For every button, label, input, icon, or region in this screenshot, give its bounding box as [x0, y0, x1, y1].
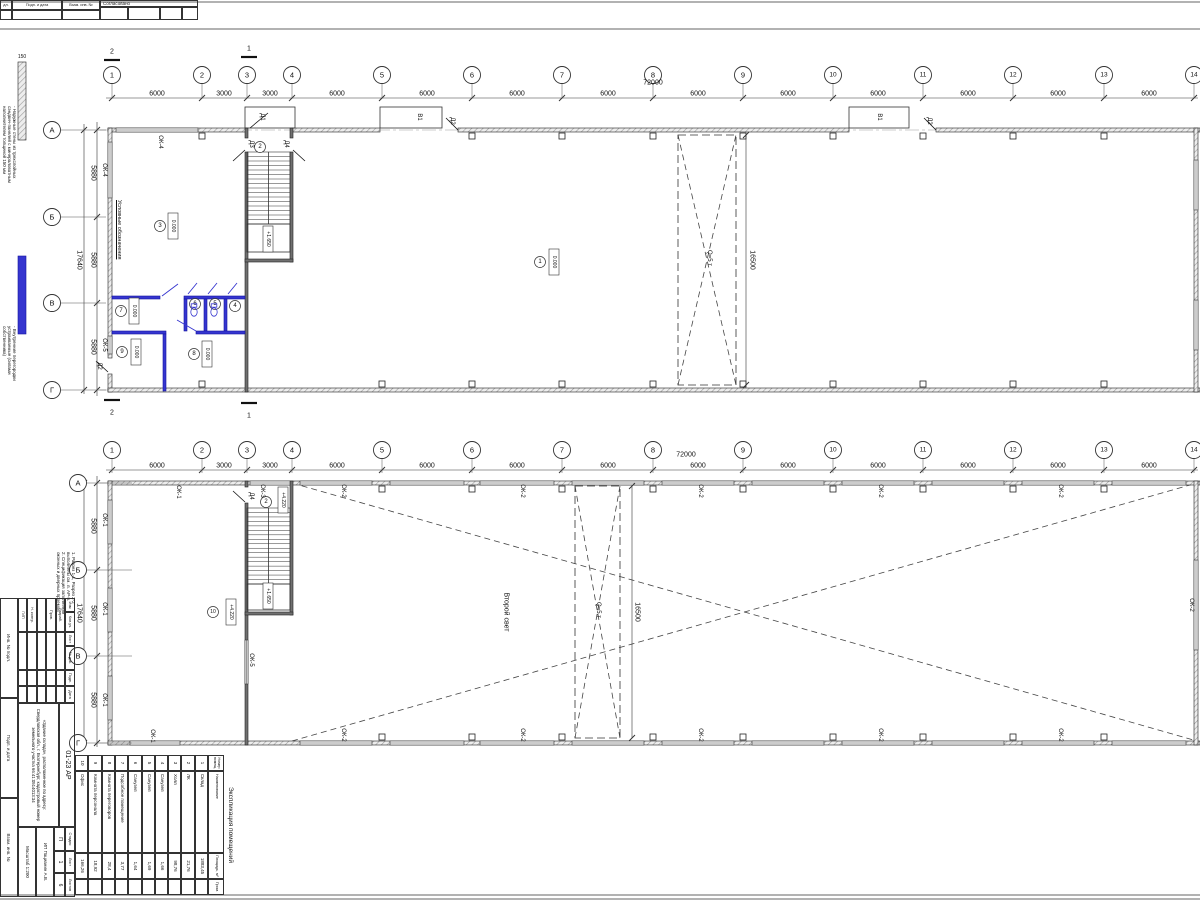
- annotation-text: 3000: [216, 91, 232, 98]
- exterior-wall: [18, 62, 26, 140]
- stamp-cell-empty: [62, 10, 100, 20]
- walls: [18, 62, 1200, 745]
- annotation-text: 6000: [690, 463, 706, 470]
- column: [1101, 133, 1107, 139]
- table-row: 10 Офис 166,26: [75, 755, 88, 895]
- column: [469, 381, 475, 387]
- annotation-text: Q=5 т: [595, 602, 601, 618]
- tb-object-description: «Здание склада», расположенное по адресу…: [18, 703, 59, 827]
- axis-bubble-label: 11: [920, 72, 927, 79]
- annotation-text: ОК-1: [101, 693, 107, 707]
- stamp-cell-empty: [0, 10, 12, 20]
- cell-name: Склад: [195, 771, 208, 853]
- column: [920, 734, 926, 740]
- annotation-text: ОК-1: [101, 602, 107, 616]
- cell-area: 3,77: [115, 853, 128, 879]
- tb-koluch: Кол.уч.: [65, 612, 75, 632]
- table-row: 7 Подсобное помещение 3,77: [115, 755, 128, 895]
- annotation-text: 5880: [90, 165, 97, 181]
- partition-wall: [204, 299, 207, 331]
- cell-number: 4: [155, 755, 168, 771]
- annotation-text: ОК-2: [877, 484, 883, 498]
- legend-line: сэндвич-панелей с минераловатным: [7, 106, 12, 324]
- table-row: 2 ЛК 21,76: [181, 755, 194, 895]
- stamp-grid-cell: [100, 7, 128, 20]
- annotation-text: 3000: [262, 463, 278, 470]
- columns: [199, 133, 1107, 740]
- axis-bubble-label: 4: [290, 446, 294, 455]
- annotation-text: Д2: [449, 117, 455, 125]
- annotation-text: 6000: [419, 91, 435, 98]
- cell-area: 28,4: [102, 853, 115, 879]
- crane-zone-crosses: [292, 135, 1197, 741]
- tb-blank: [56, 632, 65, 670]
- col-header-name: Наименование: [208, 771, 224, 853]
- cell-number: 10: [75, 755, 88, 771]
- cell-note: [181, 879, 194, 895]
- cell-note: [88, 879, 101, 895]
- column: [1101, 381, 1107, 387]
- tb-blank: [46, 670, 55, 686]
- annotation-text: 6000: [600, 463, 616, 470]
- cell-number: 6: [128, 755, 141, 771]
- interior-wall: [290, 128, 293, 138]
- tb-blank: [37, 670, 46, 686]
- level-value: 0.000: [131, 305, 137, 318]
- explication-rows: 1 Склад 1883,45 2 ЛК 21,76 3 Холл 98,76 …: [75, 755, 208, 895]
- annotation-text: 150: [18, 54, 27, 60]
- annotation-text: ОК-2: [519, 484, 525, 498]
- cell-area: 1,66: [155, 853, 168, 879]
- axis-bubbles: 12345678910111213141234567891011121314АБ…: [44, 67, 1200, 752]
- tb-sheets-value: 6: [54, 873, 65, 897]
- axis-bubble-label: Г: [50, 386, 54, 395]
- tb-nkontr: Н. контр.: [27, 598, 36, 632]
- column: [830, 486, 836, 492]
- column: [920, 133, 926, 139]
- annotation-text: 6000: [960, 463, 976, 470]
- annotation-text: 5880: [90, 692, 97, 708]
- column: [1010, 734, 1016, 740]
- cell-number: 1: [195, 755, 208, 771]
- interior-wall: [290, 152, 293, 262]
- annotation-text: ОК-1: [101, 513, 107, 527]
- axis-bubble-label: 5: [380, 446, 384, 455]
- annotation-text: Второй свет: [503, 592, 511, 632]
- cell-name: Холл: [168, 771, 181, 853]
- annotation-text: 17640: [76, 250, 83, 270]
- door-leaf: [233, 491, 245, 502]
- stairs: [247, 152, 290, 584]
- axis-bubble-label: 14: [1190, 72, 1198, 79]
- column: [740, 734, 746, 740]
- annotation-text: 2: [110, 49, 114, 56]
- tb-podp: Подп.: [65, 670, 75, 686]
- column: [559, 133, 565, 139]
- table-row: 8 Комната переговоров 28,4: [102, 755, 115, 895]
- cell-number: 2: [181, 755, 194, 771]
- annotation-text: Д4: [283, 140, 289, 148]
- table-row: 4 Санузел 1,66: [155, 755, 168, 895]
- cell-note: [102, 879, 115, 895]
- axis-bubble-label: 2: [200, 446, 204, 455]
- partition-door-leaf: [162, 284, 178, 296]
- annotation-text: Q=5 т: [706, 250, 712, 266]
- partition-door-leaf: [228, 283, 237, 294]
- exterior-wall: [936, 128, 1200, 132]
- annotation-text: 16500: [749, 250, 756, 270]
- annotation-text: 6000: [600, 91, 616, 98]
- cell-number: 3: [168, 755, 181, 771]
- explication-title: Экспликация помещений: [224, 755, 237, 895]
- column: [650, 734, 656, 740]
- annotation-text: 6000: [780, 91, 796, 98]
- annotation-text: 6000: [329, 91, 345, 98]
- tb-blank: [27, 670, 36, 686]
- tb-stage-value: П: [54, 827, 65, 851]
- annotation-text: 3000: [262, 91, 278, 98]
- annotation-text: 17640: [76, 603, 83, 623]
- axis-bubble-label: В: [49, 299, 54, 308]
- annotation-text: ОК-2: [697, 484, 703, 498]
- partition-wall: [163, 334, 166, 391]
- axis-bubble-label: 12: [1009, 447, 1017, 454]
- annotation-text: ОК-2: [519, 728, 525, 742]
- annotation-text: 6000: [690, 91, 706, 98]
- annotation-text: 5880: [90, 252, 97, 268]
- column: [1010, 381, 1016, 387]
- interior-wall: [290, 481, 293, 615]
- column: [1101, 734, 1107, 740]
- dimension-lines: [81, 95, 1198, 747]
- table-row: 3 Холл 98,76: [168, 755, 181, 895]
- tb-blank: [37, 686, 46, 703]
- axis-bubble-label: 9: [741, 446, 745, 455]
- cell-number: 7: [115, 755, 128, 771]
- column: [650, 133, 656, 139]
- annotation-text: ОК-2: [340, 484, 346, 498]
- axis-bubble-label: 8: [651, 71, 655, 80]
- tb-blank: [27, 632, 36, 670]
- axis-bubble-label: 4: [290, 71, 294, 80]
- column: [379, 734, 385, 740]
- cell-note: [168, 879, 181, 895]
- cell-area: 21,76: [181, 853, 194, 879]
- annotation-text: 6000: [1141, 463, 1157, 470]
- title-block: Изм Кол.уч. Лист № док. Подп. Дата Разра…: [18, 598, 75, 897]
- annotation-text: 5880: [90, 605, 97, 621]
- tb-data: Дата: [65, 686, 75, 703]
- left-frame-strip: Инв. № подл. Подп. и дата Взам. инв. №: [0, 598, 18, 897]
- axis-bubble-label: 3: [245, 446, 249, 455]
- vestibules-and-crane-outlines: [245, 107, 909, 738]
- tb-blankrow: [37, 598, 46, 632]
- exterior-wall: [292, 128, 380, 132]
- annotation-text: 6000: [1141, 91, 1157, 98]
- frame-cell-podp-data: Подп. и дата: [0, 698, 18, 798]
- stamp-grid-cell: [182, 7, 198, 20]
- column: [1101, 486, 1107, 492]
- stamp-cell-empty: [12, 10, 62, 20]
- room-number: 10: [210, 609, 216, 615]
- column: [650, 486, 656, 492]
- column: [469, 133, 475, 139]
- tb-prov: Пров.: [46, 598, 55, 632]
- axis-bubble-label: 6: [470, 446, 474, 455]
- annotation-text: 6000: [509, 463, 525, 470]
- annotation-text: ОК-2: [877, 728, 883, 742]
- annotation-text: Д2: [926, 117, 932, 125]
- annotation-text: 1: [247, 413, 251, 420]
- cell-number: 5: [142, 755, 155, 771]
- column: [920, 486, 926, 492]
- column: [830, 734, 836, 740]
- cell-name: Санузел: [142, 771, 155, 853]
- axis-bubble-label: 12: [1009, 72, 1017, 79]
- annotation-text: ОК-2: [1188, 598, 1194, 612]
- interior-wall: [245, 128, 248, 138]
- stamp-grid-cell: [128, 7, 160, 20]
- exterior-wall: [108, 388, 1200, 392]
- annotation-text: Д4: [248, 492, 254, 500]
- annotation-text: 6000: [780, 463, 796, 470]
- annotation-text: 72000: [643, 80, 663, 87]
- annotation-text: ОК-4: [157, 135, 163, 149]
- legend-line: - Внутренние перегородки: [12, 326, 17, 466]
- column: [559, 381, 565, 387]
- axis-bubble-label: 6: [470, 71, 474, 80]
- stamp-approved-label: Согласовано: [100, 0, 198, 7]
- interior-wall: [245, 259, 293, 262]
- cell-area: 1,69: [142, 853, 155, 879]
- partition-door-leaf: [188, 283, 197, 294]
- explication-header: Номер помещ. Наименование Площадь, м² Пр…: [208, 755, 224, 895]
- axis-bubble-label: 14: [1190, 447, 1198, 454]
- level-value: 0.000: [133, 346, 139, 359]
- axis-bubble-label: 1: [110, 446, 114, 455]
- window-openings: [108, 128, 1198, 745]
- legend-line: устраиваемые (силами: [7, 326, 12, 466]
- partition-wall: [18, 256, 26, 334]
- table-row: 9 Комната персонала 18,92: [88, 755, 101, 895]
- partition-wall: [196, 331, 245, 334]
- annotation-text: ОК-2: [1057, 728, 1063, 742]
- cell-number: 9: [88, 755, 101, 771]
- column: [740, 486, 746, 492]
- cell-name: Подсобное помещение: [115, 771, 128, 853]
- legend-exterior-wall-caption: - Наружные стены из трехслойных сэндвич-…: [2, 106, 17, 324]
- top-stamp-strip: дл. Подп. и дата Взам. инв. № Согласован…: [0, 0, 198, 20]
- tb-gip: ГИП: [18, 598, 27, 632]
- column: [469, 734, 475, 740]
- partition-wall: [112, 331, 166, 334]
- axis-bubble-label: 1: [110, 71, 114, 80]
- annotation-text: Д3: [248, 140, 254, 148]
- axis-bubble-label: 8: [651, 446, 655, 455]
- table-row: 1 Склад 1883,45: [195, 755, 208, 895]
- door-leaf: [293, 150, 305, 161]
- cell-note: [75, 879, 88, 895]
- annotation-text: ОК-5: [248, 653, 254, 667]
- room-explication-table: Экспликация помещений Номер помещ. Наиме…: [75, 755, 237, 895]
- col-header-number: Номер помещ.: [208, 755, 224, 771]
- level-value: 0.000: [170, 220, 176, 233]
- door-leaves-and-marks: [96, 57, 936, 738]
- axis-bubble-label: А: [49, 126, 54, 135]
- axis-bubble-label: 7: [560, 446, 564, 455]
- annotation-text: 1: [247, 46, 251, 53]
- tb-blank: [56, 670, 65, 686]
- table-row: 5 Санузел 1,69: [142, 755, 155, 895]
- annotation-text: ОК-1: [149, 729, 155, 743]
- partition-wall: [184, 299, 187, 331]
- axis-bubble-label: 9: [741, 71, 745, 80]
- tb-blank: [18, 632, 27, 670]
- tb-blank: [46, 686, 55, 703]
- annotation-text: 6000: [509, 91, 525, 98]
- annotation-text: ОК-2: [340, 728, 346, 742]
- column: [199, 133, 205, 139]
- cell-name: ЛК: [181, 771, 194, 853]
- cell-area: 1883,45: [195, 853, 208, 879]
- tb-company: ИП Пацианин А.В.: [36, 827, 54, 897]
- annotation-texts: 6000300030006000600060006000600060006000…: [18, 46, 1194, 744]
- stamp-cell-podp-data: Подп. и дата: [12, 0, 62, 10]
- annotation-text: 6000: [960, 91, 976, 98]
- annotation-text: 6000: [419, 463, 435, 470]
- tb-blank: [37, 632, 46, 670]
- column: [199, 381, 205, 387]
- frame-cell-vzam-inv: Взам. инв. №: [0, 798, 18, 897]
- column: [1010, 486, 1016, 492]
- col-header-area: Площадь, м²: [208, 853, 224, 879]
- table-row: 6 Санузел 1,64: [128, 755, 141, 895]
- axis-bubble-label: 10: [829, 447, 837, 454]
- annotation-text: Д2: [96, 362, 102, 370]
- level-value: +4.220: [280, 492, 286, 508]
- legend-line: наполнителем толщиной 150 мм: [2, 106, 7, 324]
- column: [559, 486, 565, 492]
- annotation-text: 72000: [676, 452, 696, 459]
- cell-name: Комната персонала: [88, 771, 101, 853]
- exterior-wall: [458, 128, 849, 132]
- axis-bubble-label: Б: [76, 566, 81, 575]
- column: [379, 486, 385, 492]
- tb-blank: [27, 686, 36, 703]
- axis-bubble-label: 7: [560, 71, 564, 80]
- annotation-text: В1: [416, 113, 422, 121]
- tb-izm: Изм: [65, 598, 75, 612]
- stamp-grid-cell: [160, 7, 182, 20]
- level-value: +1.650: [265, 231, 271, 247]
- axis-bubble-label: 5: [380, 71, 384, 80]
- annotation-text: Д1: [259, 113, 265, 121]
- door-leaf: [233, 150, 245, 161]
- annotation-text: 16500: [634, 602, 641, 622]
- cell-note: [115, 879, 128, 895]
- cell-name: Офис: [75, 771, 88, 853]
- axis-bubble-label: А: [75, 479, 80, 488]
- column: [650, 381, 656, 387]
- annotation-text: 6000: [870, 91, 886, 98]
- axis-bubble-label: Б: [50, 213, 55, 222]
- annotation-text: 6000: [329, 463, 345, 470]
- column: [830, 381, 836, 387]
- column: [559, 734, 565, 740]
- vestibule-outline: [380, 107, 442, 128]
- tb-sheet-value: 1: [54, 851, 65, 873]
- cell-name: Санузел: [128, 771, 141, 853]
- tb-list: Лист: [65, 632, 75, 646]
- stamp-cell-dubl: дл.: [0, 0, 12, 10]
- cell-name: Комната переговоров: [102, 771, 115, 853]
- column: [920, 381, 926, 387]
- tb-blank: [56, 686, 65, 703]
- cell-name: Санузел: [155, 771, 168, 853]
- partition-wall: [224, 299, 227, 331]
- level-value: 0.000: [204, 348, 210, 361]
- legend-line: - Наружные стены из трехслойных: [12, 106, 17, 324]
- legend-line: собственника): [2, 326, 7, 466]
- tb-blank: [18, 670, 27, 686]
- column: [469, 486, 475, 492]
- cell-area: 1,64: [128, 853, 141, 879]
- vestibule-outline: [245, 107, 295, 128]
- annotation-text: 6000: [870, 463, 886, 470]
- tb-stage-label: Стадия: [65, 827, 75, 851]
- annotation-text: 6000: [149, 91, 165, 98]
- cell-area: 18,92: [88, 853, 101, 879]
- tb-scale: Масштаб 1:200: [18, 827, 36, 897]
- annotation-text: 6000: [1050, 91, 1066, 98]
- axis-bubble-label: 11: [920, 447, 927, 454]
- tb-sheet-label: Лист: [65, 851, 75, 873]
- tb-doc-number: 01-23 АР: [59, 703, 75, 827]
- axis-bubble-label: 13: [1100, 72, 1108, 79]
- annotation-text: 6000: [149, 463, 165, 470]
- cell-note: [128, 879, 141, 895]
- tb-ndok: № док.: [65, 646, 75, 670]
- cell-note: [142, 879, 155, 895]
- cell-area: 166,26: [75, 853, 88, 879]
- cell-number: 8: [102, 755, 115, 771]
- tb-blank: [46, 632, 55, 670]
- annotation-text: ОК-1: [175, 485, 181, 499]
- legend-title: Условные обозначения: [106, 200, 122, 298]
- interior-wall: [245, 612, 293, 615]
- axis-bubble-label: 3: [245, 71, 249, 80]
- annotation-text: ОК-2: [1057, 484, 1063, 498]
- annotation-text: 2: [110, 410, 114, 417]
- cell-note: [155, 879, 168, 895]
- col-header-note: Прим.: [208, 879, 224, 895]
- axis-bubble-label: 2: [200, 71, 204, 80]
- column: [830, 133, 836, 139]
- level-value: +4.220: [228, 604, 234, 620]
- annotation-text: В1: [876, 113, 882, 121]
- annotation-text: ОК-5: [101, 338, 107, 352]
- partition-door-leaf: [208, 283, 217, 294]
- annotation-text: 5880: [90, 518, 97, 534]
- annotation-text: ОК-4: [101, 163, 107, 177]
- axis-bubble-label: В: [75, 652, 80, 661]
- cell-note: [195, 879, 208, 895]
- annotation-text: 6000: [1050, 463, 1066, 470]
- axis-bubble-label: Г: [76, 739, 80, 748]
- column: [1010, 133, 1016, 139]
- tb-blank: [18, 686, 27, 703]
- room-number-markers: 123456789210: [116, 142, 546, 618]
